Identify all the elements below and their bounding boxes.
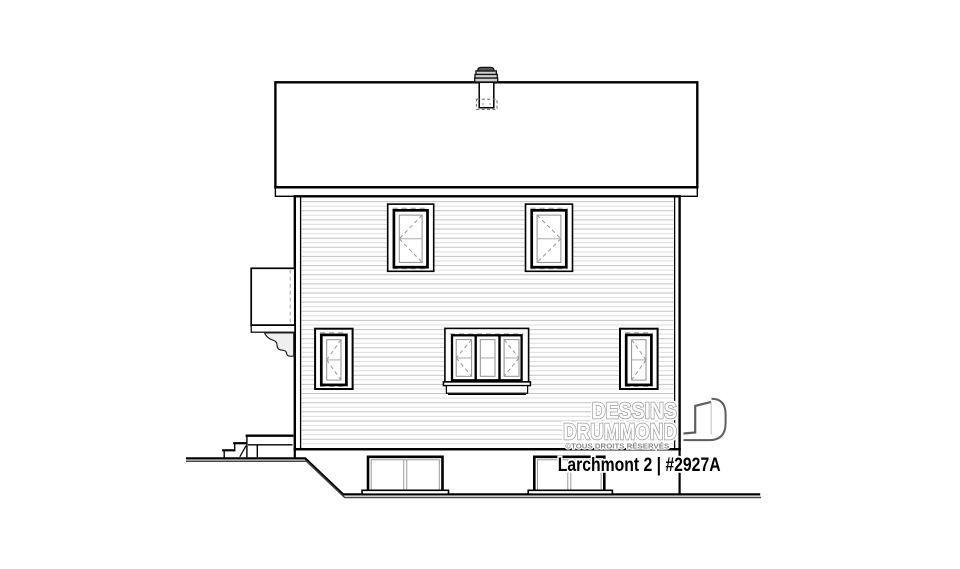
svg-text:Larchmont 2 | #2927A: Larchmont 2 | #2927A bbox=[558, 455, 721, 476]
svg-text:©TOUS DROITS RÉSERVÉS: ©TOUS DROITS RÉSERVÉS bbox=[565, 441, 669, 450]
svg-text:DRUMMOND: DRUMMOND bbox=[563, 418, 677, 444]
